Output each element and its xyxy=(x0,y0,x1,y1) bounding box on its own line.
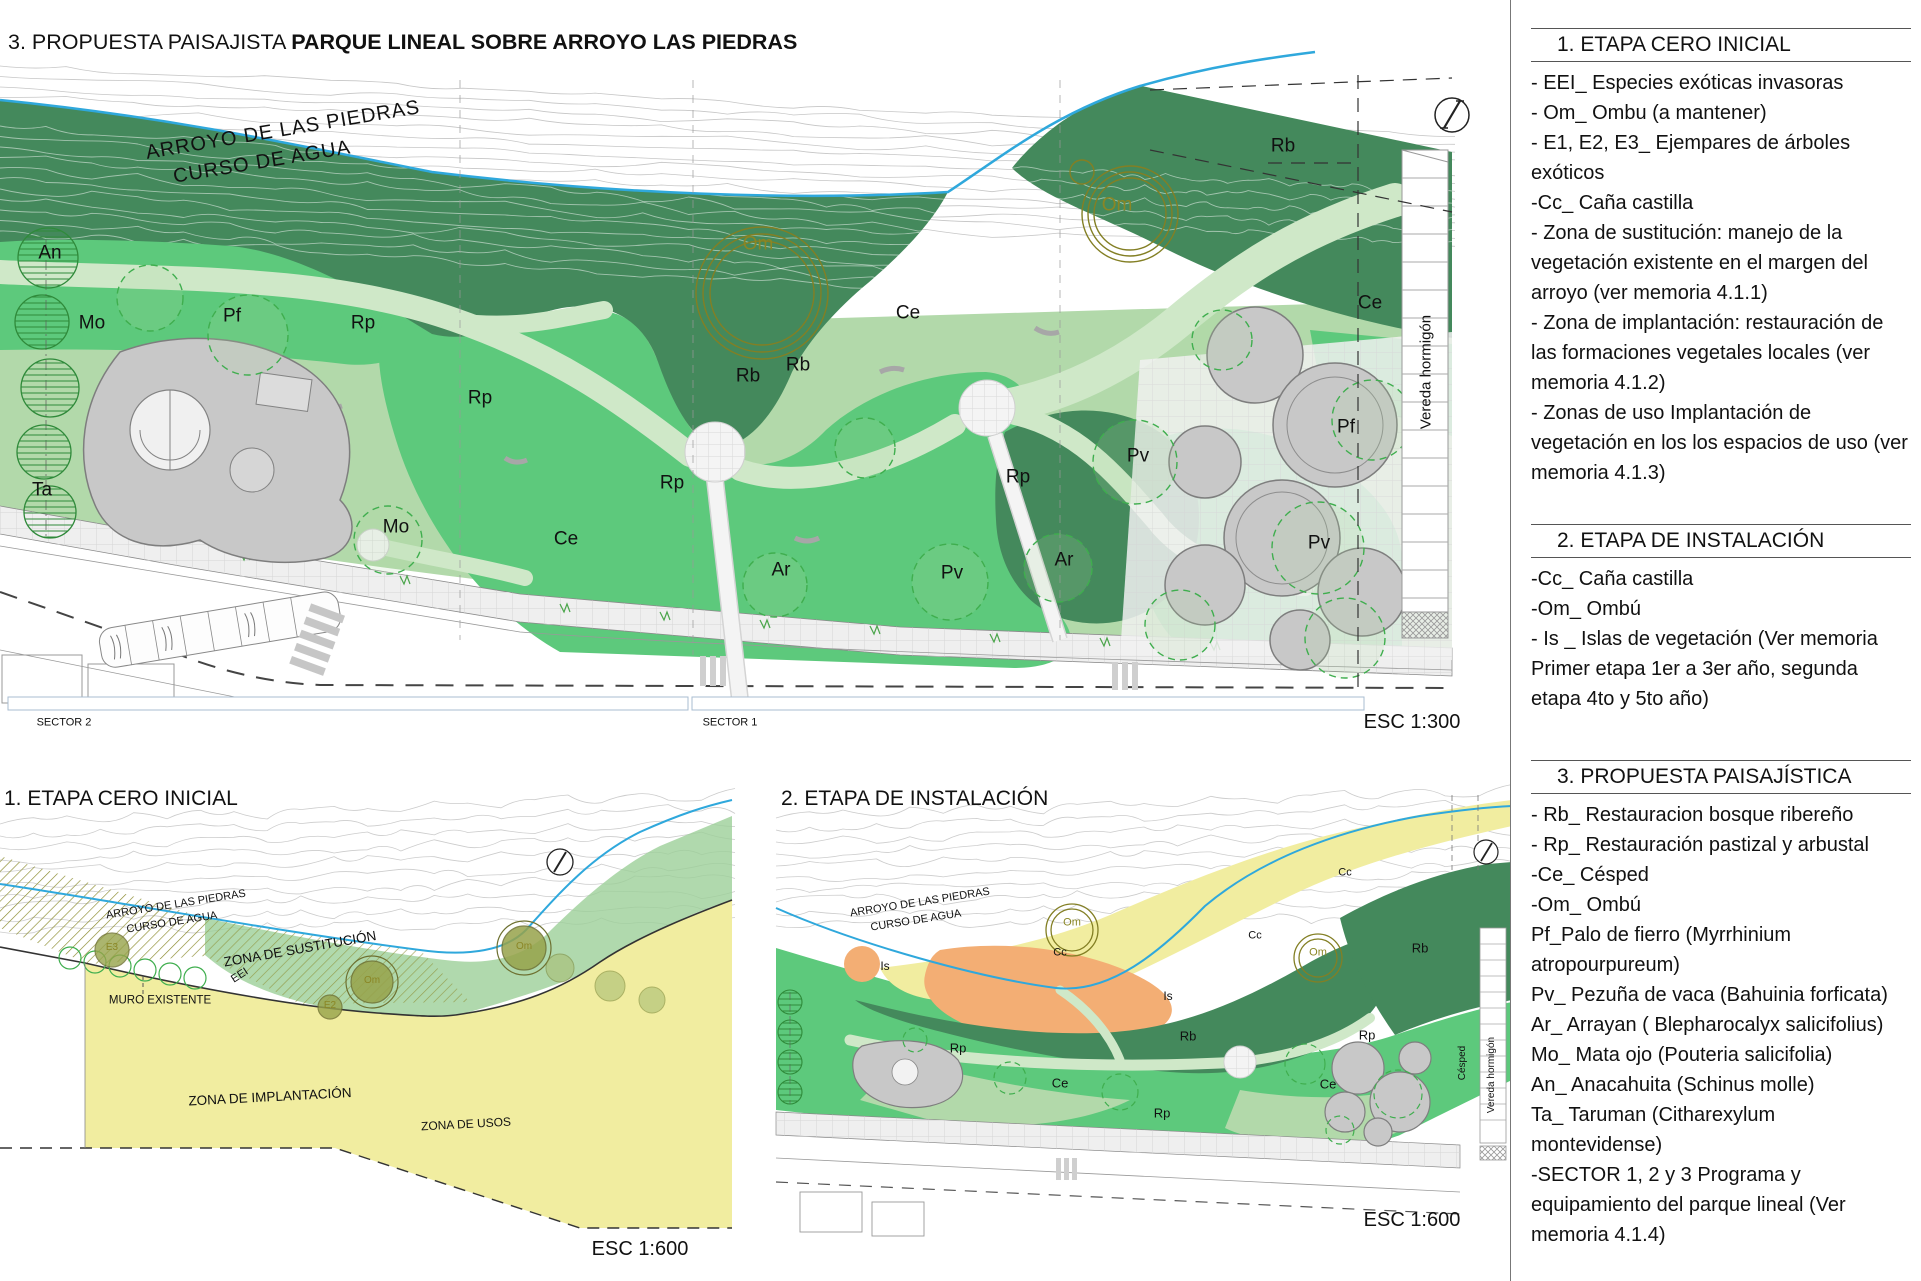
parking-bays xyxy=(97,590,342,669)
north-arrow-icon xyxy=(1435,98,1469,132)
invasive-hatch xyxy=(205,918,470,1004)
legend-section-heading-2: 2. ETAPA DE INSTALACIÓN xyxy=(1531,524,1911,558)
legend-item: An_ Anacahuita (Schinus molle) xyxy=(1531,1070,1911,1100)
drawing-etapa-instalacion xyxy=(776,785,1512,1237)
legend-section-heading-1: 1. ETAPA CERO INICIAL xyxy=(1531,28,1911,62)
legend-section-items-2: -Cc_ Caña castilla-Om_ Ombú- Is _ Islas … xyxy=(1531,564,1911,714)
legend-item: - Zonas de uso Implantación de vegetació… xyxy=(1531,398,1911,488)
drawing-etapa-cero xyxy=(0,789,735,1229)
drawing2-title: 2. ETAPA DE INSTALACIÓN xyxy=(781,787,1048,811)
legend-section-heading-3: 3. PROPUESTA PAISAJÍSTICA xyxy=(1531,760,1911,794)
legend-item: Mo_ Mata ojo (Pouteria salicifolia) xyxy=(1531,1040,1911,1070)
legend-item: Ta_ Taruman (Citharexylum montevidense) xyxy=(1531,1100,1911,1160)
legend-item: -Om_ Ombú xyxy=(1531,594,1911,624)
north-arrow-icon xyxy=(547,849,573,875)
legend-item: - Om_ Ombu (a mantener) xyxy=(1531,98,1911,128)
legend-item: - Zona de implantación: restauración de … xyxy=(1531,308,1911,398)
legend-item: -Cc_ Caña castilla xyxy=(1531,188,1911,218)
legend-item: - E1, E2, E3_ Ejempares de árboles exóti… xyxy=(1531,128,1911,188)
street xyxy=(776,1158,1460,1236)
legend-item: Pf_Palo de fierro (Myrrhinium atropourpu… xyxy=(1531,920,1911,980)
drawing1-title: 1. ETAPA CERO INICIAL xyxy=(4,787,238,811)
legend-item: - EEI_ Especies exóticas invasoras xyxy=(1531,68,1911,98)
page-title: 3. PROPUESTA PAISAJISTA PARQUE LINEAL SO… xyxy=(8,30,797,55)
contour-line xyxy=(776,859,1512,881)
legend-item: -SECTOR 1, 2 y 3 Programa y equipamiento… xyxy=(1531,1160,1911,1250)
legend-item: Ar_ Arrayan ( Blepharocalyx salicifolius… xyxy=(1531,1010,1911,1040)
legend-item: - Rb_ Restauracion bosque ribereño xyxy=(1531,800,1911,830)
legend-section-items-3: - Rb_ Restauracion bosque ribereño- Rp_ … xyxy=(1531,800,1911,1250)
legend-item: - Is _ Islas de vegetación (Ver memoria … xyxy=(1531,624,1911,714)
page-title-prefix: 3. PROPUESTA PAISAJISTA xyxy=(8,30,291,54)
legend-item: - Rp_ Restauración pastizal y arbustal xyxy=(1531,830,1911,860)
legend-item: -Ce_ Césped xyxy=(1531,860,1911,890)
legend-item: - Zona de sustitución: manejo de la vege… xyxy=(1531,218,1911,308)
main-plan xyxy=(0,52,1469,710)
legend-item: -Om_ Ombú xyxy=(1531,890,1911,920)
legend-item: -Cc_ Caña castilla xyxy=(1531,564,1911,594)
sidewalk-strip xyxy=(1480,928,1506,1160)
sector-bar xyxy=(8,697,1364,710)
legend-section-items-1: - EEI_ Especies exóticas invasoras- Om_ … xyxy=(1531,68,1911,488)
legend-sidebar: 1. ETAPA CERO INICIAL - EEI_ Especies ex… xyxy=(1510,0,1921,1281)
north-arrow-icon xyxy=(1474,840,1498,864)
legend-item: Pv_ Pezuña de vaca (Bahuinia forficata) xyxy=(1531,980,1911,1010)
page-title-main: PARQUE LINEAL SOBRE ARROYO LAS PIEDRAS xyxy=(291,30,797,54)
vegetation-island-zone xyxy=(844,946,880,982)
plan-sheet: 3. PROPUESTA PAISAJISTA PARQUE LINEAL SO… xyxy=(0,0,1921,1281)
sidewalk-strip xyxy=(1402,150,1448,638)
contour-line xyxy=(0,821,735,850)
